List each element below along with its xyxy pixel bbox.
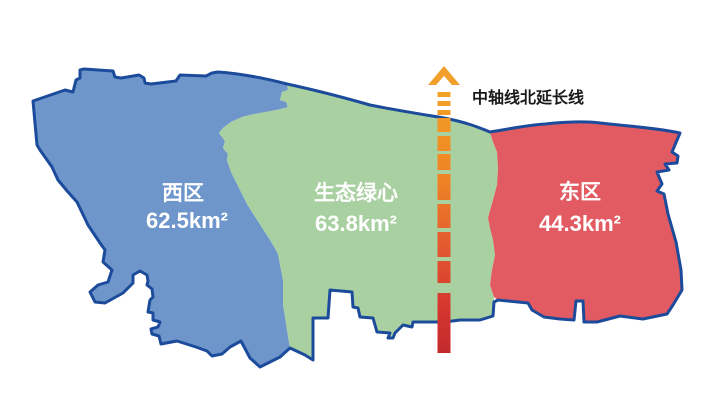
district-map-figure: 西区 62.5km² 生态绿心 63.8km² 东区 44.3km² 中轴线北延… [0,0,718,407]
east-district-name: 东区 [559,180,601,204]
axis-label: 中轴线北延长线 [472,88,584,107]
west-district-name: 西区 [162,182,204,205]
axis-arrow-up-icon [428,66,460,85]
green-heart-area: 63.8km² [315,211,397,236]
east-district-area: 44.3km² [539,211,621,236]
west-district-area: 62.5km² [146,208,228,233]
green-heart-name: 生态绿心 [314,181,398,205]
district-map-svg: 西区 62.5km² 生态绿心 63.8km² 东区 44.3km² 中轴线北延… [0,0,718,407]
